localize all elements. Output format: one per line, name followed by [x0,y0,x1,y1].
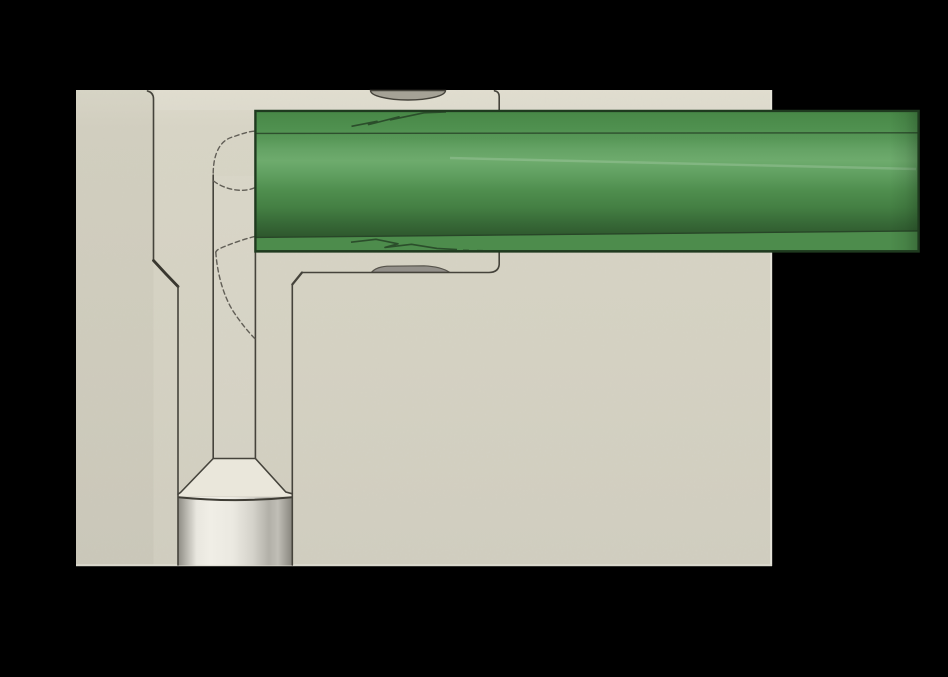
cad-section-viewport[interactable] [0,0,948,677]
section-scene [0,0,948,677]
left-face-shade [76,90,154,566]
top-ledge-face [155,90,773,110]
metal-pin [179,497,292,566]
green-rod [255,110,918,252]
rod-top-seam-line [255,133,918,134]
rod-end-shading [890,111,918,251]
channel-far-wall [214,176,255,458]
rod-body [255,110,918,252]
pin-body [179,497,292,566]
